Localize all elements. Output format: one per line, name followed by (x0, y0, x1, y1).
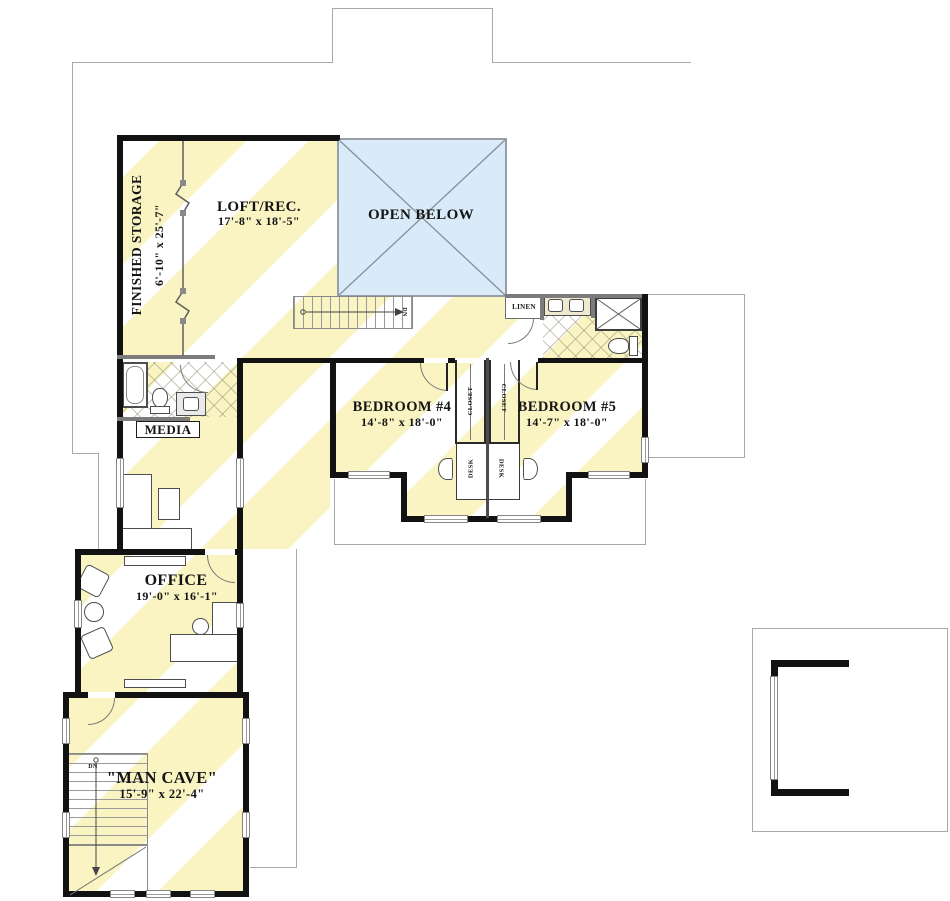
roof-outline (492, 62, 691, 63)
wall (237, 508, 243, 552)
roof-outline (744, 294, 745, 458)
window (62, 718, 70, 744)
window (641, 437, 649, 463)
corridor-floor (243, 363, 330, 549)
bathtub-inner (126, 366, 144, 404)
sink-icon (548, 299, 563, 312)
sofa-section-horizontal (122, 528, 192, 550)
label-linen: LINEN (506, 300, 542, 314)
wall (117, 135, 123, 458)
wall (115, 692, 249, 698)
window (146, 890, 171, 898)
room-label-office: OFFICE (101, 572, 251, 589)
room-label-finished-storage: FINISHED STORAGE (129, 150, 145, 340)
wall (237, 358, 243, 458)
roof-outline (332, 8, 333, 63)
roof-outline (334, 479, 335, 545)
window (74, 600, 82, 628)
window (770, 676, 778, 780)
wall (538, 358, 642, 363)
roof-outline (72, 62, 333, 63)
roof-outline (98, 453, 99, 553)
label-dn-man-cave-stairs: DN (83, 763, 103, 771)
desk-divider-wall (486, 358, 489, 518)
wall (117, 135, 340, 141)
label-desk-left: DESK (467, 444, 476, 494)
toilet-icon (152, 388, 168, 408)
wall (401, 472, 407, 522)
round-table (84, 602, 104, 622)
wall (215, 891, 249, 897)
office-desk (170, 634, 238, 662)
wall (63, 838, 69, 897)
label-media: MEDIA (136, 421, 200, 438)
door-leaf (446, 363, 448, 391)
door-leaf (536, 362, 538, 390)
wall (771, 780, 778, 796)
loft-bottom-wall (117, 355, 215, 359)
roof-outline (296, 541, 297, 868)
label-dn-main-stairs: DN (400, 302, 408, 322)
wall (63, 744, 69, 812)
window (116, 458, 124, 508)
stairs-main (293, 296, 413, 329)
window (242, 812, 250, 838)
sink-icon (183, 397, 199, 411)
window (236, 458, 244, 508)
room-label-bedroom4: BEDROOM #4 (327, 399, 477, 415)
window (62, 812, 70, 838)
window (242, 718, 250, 744)
sink-icon (569, 299, 584, 312)
roof-outline (250, 867, 297, 868)
wall (237, 628, 243, 692)
wall (243, 838, 249, 897)
window (190, 890, 215, 898)
window (110, 890, 135, 898)
room-dims-man-cave: 15'-9" x 22'-4" (87, 788, 237, 801)
floor-plan: FINISHED STORAGE 6'-10" x 25'-7" LOFT/RE… (0, 0, 950, 901)
room-label-loft-rec: LOFT/REC. (184, 199, 334, 215)
toilet-tank (629, 336, 638, 356)
label-desk-right: DESK (497, 444, 506, 494)
wall (63, 891, 110, 897)
console-table (124, 556, 186, 566)
window (348, 471, 390, 479)
window (424, 515, 468, 523)
detached-structure-outline (752, 628, 948, 832)
wall (171, 891, 190, 897)
room-dims-bedroom5: 14'-7" x 18'-0" (492, 416, 642, 429)
coffee-table (158, 488, 180, 520)
window (497, 515, 541, 523)
wall (75, 628, 81, 692)
wall (566, 472, 572, 522)
wall (63, 692, 69, 718)
toilet-tank (150, 406, 170, 414)
room-label-open-below: OPEN BELOW (346, 207, 496, 223)
room-dims-bedroom4: 14'-8" x 18'-0" (327, 416, 477, 429)
wall (117, 508, 123, 552)
room-dims-finished-storage: 6'-10" x 25'-7" (152, 150, 166, 340)
wall (75, 549, 205, 555)
desk-chair (438, 458, 453, 480)
roof-outline (648, 457, 745, 458)
shower (595, 297, 642, 331)
wall (243, 692, 249, 718)
roof-outline (492, 8, 493, 63)
wall (771, 660, 778, 676)
roof-outline (332, 8, 493, 9)
roof-outline (334, 544, 646, 545)
room-label-man-cave: "MAN CAVE" (72, 769, 252, 787)
stairs-man-cave-winder (68, 845, 148, 897)
wall (771, 789, 849, 796)
room-label-bedroom5: BEDROOM #5 (492, 399, 642, 415)
roof-outline (645, 479, 646, 545)
label-closet-left: CLOSET (465, 371, 475, 431)
window (236, 603, 244, 628)
bath-divider-wall (591, 296, 595, 318)
wall (771, 660, 849, 667)
wall (448, 358, 455, 363)
roof-outline (72, 62, 73, 454)
bath-top-wall (505, 294, 648, 298)
wall (135, 891, 146, 897)
room-dims-office: 19'-0" x 16'-1" (102, 590, 252, 603)
label-closet-right: CLOSET (499, 368, 509, 428)
window (588, 471, 630, 479)
roof-outline (648, 294, 745, 295)
console-table (124, 679, 186, 688)
toilet-icon (608, 338, 629, 354)
wall (75, 549, 81, 600)
room-dims-loft-rec: 17'-8" x 18'-5" (184, 215, 334, 228)
roof-outline (72, 453, 99, 454)
